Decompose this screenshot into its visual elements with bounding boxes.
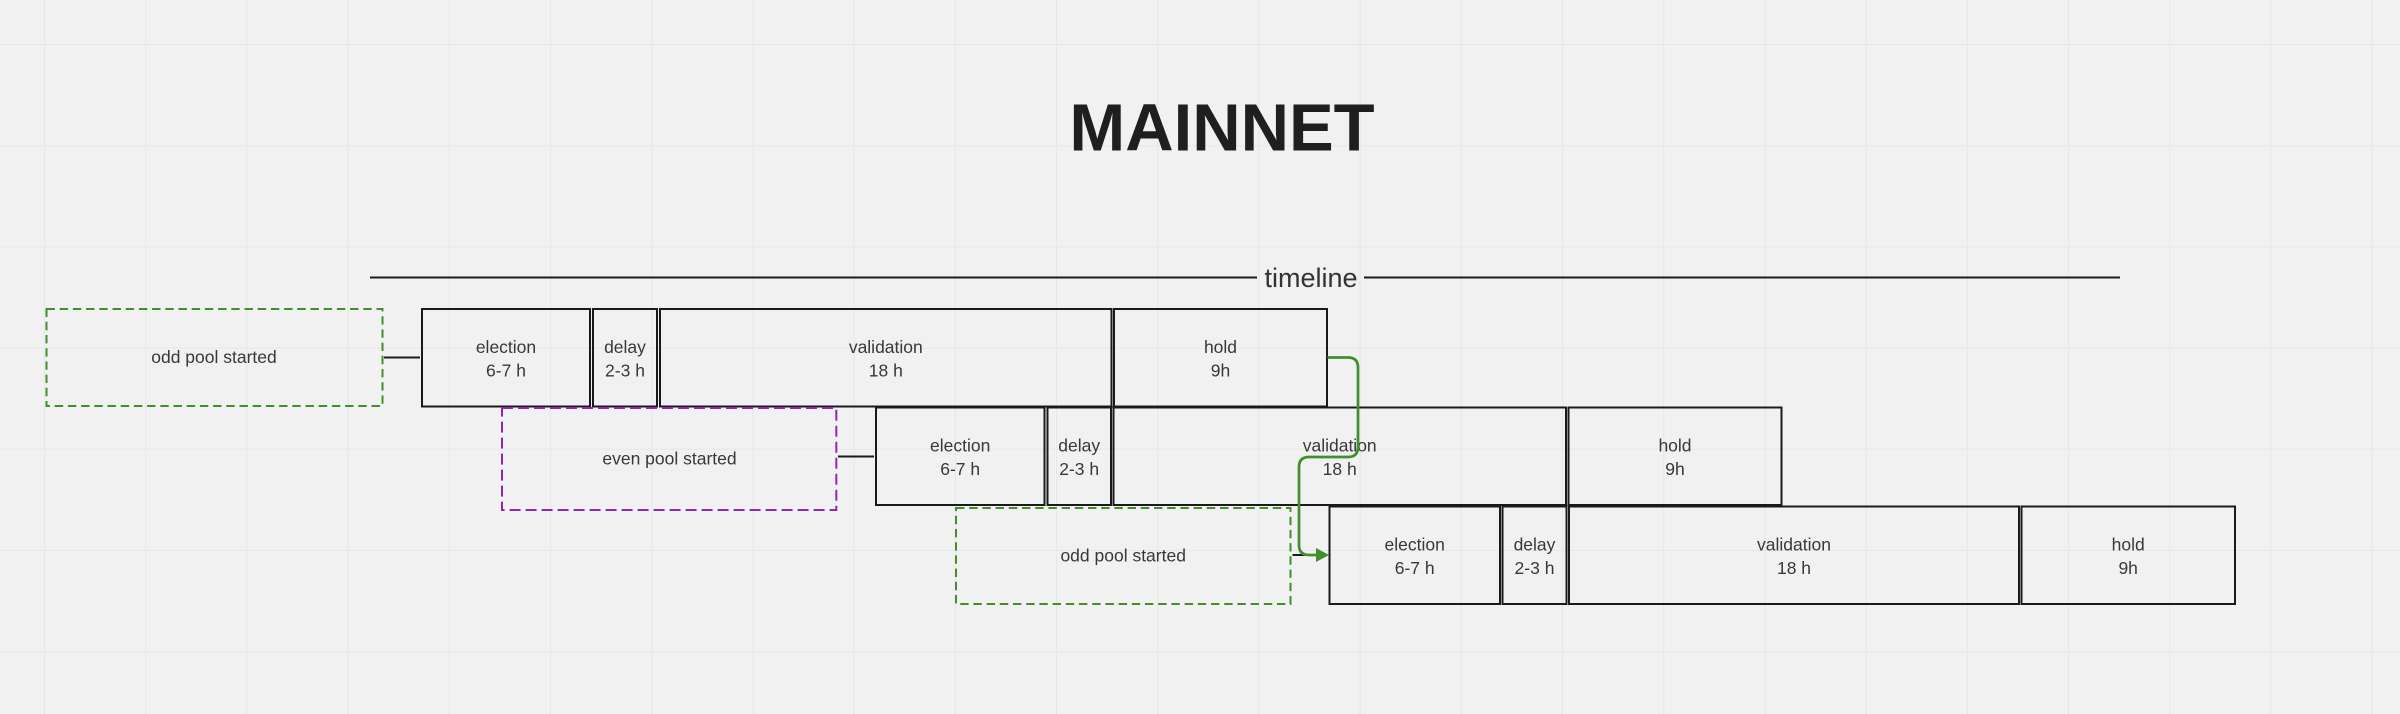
svg-text:validation: validation — [849, 337, 923, 357]
svg-text:18 h: 18 h — [869, 360, 903, 380]
svg-text:MAINNET: MAINNET — [1069, 91, 1374, 166]
svg-text:even pool started: even pool started — [602, 449, 736, 469]
svg-text:9h: 9h — [2118, 558, 2137, 578]
svg-text:delay: delay — [1058, 436, 1100, 456]
svg-text:9h: 9h — [1211, 360, 1230, 380]
svg-text:2-3 h: 2-3 h — [605, 360, 645, 380]
svg-text:9h: 9h — [1665, 459, 1684, 479]
svg-text:election: election — [1385, 535, 1445, 555]
svg-text:18 h: 18 h — [1323, 459, 1357, 479]
svg-text:delay: delay — [1514, 535, 1556, 555]
svg-text:18 h: 18 h — [1777, 558, 1811, 578]
svg-text:6-7 h: 6-7 h — [486, 360, 526, 380]
svg-text:election: election — [930, 436, 990, 456]
svg-text:hold: hold — [1204, 337, 1237, 357]
svg-text:odd pool started: odd pool started — [151, 347, 277, 367]
svg-text:validation: validation — [1757, 535, 1831, 555]
svg-text:6-7 h: 6-7 h — [940, 459, 980, 479]
svg-text:2-3 h: 2-3 h — [1515, 558, 1555, 578]
svg-text:validation: validation — [1303, 436, 1377, 456]
svg-text:election: election — [476, 337, 536, 357]
svg-text:2-3 h: 2-3 h — [1059, 459, 1099, 479]
svg-text:hold: hold — [1658, 436, 1691, 456]
svg-text:hold: hold — [2112, 535, 2145, 555]
svg-text:delay: delay — [604, 337, 646, 357]
svg-text:odd pool started: odd pool started — [1060, 546, 1186, 566]
svg-text:timeline: timeline — [1264, 263, 1357, 293]
svg-text:6-7 h: 6-7 h — [1395, 558, 1435, 578]
